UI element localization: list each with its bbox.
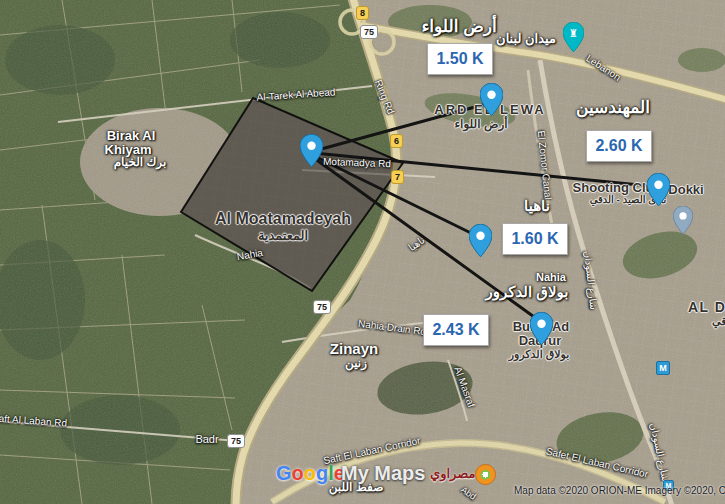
distance-label-mohandessin[interactable]: 2.60 K <box>586 130 652 162</box>
google-letter: o <box>292 462 304 485</box>
google-letter: G <box>276 462 292 485</box>
route-badge-8: 8 <box>356 6 369 20</box>
distance-label-nahia[interactable]: 1.60 K <box>502 223 568 255</box>
label-lebanon-square: ميدان لبنان <box>496 32 556 46</box>
castle-icon: ♜ <box>569 27 578 39</box>
label-al-doqi-arabic: الدقي <box>712 316 725 328</box>
label-dokki: Dokki <box>668 183 703 197</box>
label-moatamadeyah-arabic: المعتمدية <box>258 229 308 243</box>
label-al-doqi: AL DOQI <box>688 300 725 315</box>
label-mohandessin: المهندسين <box>576 99 650 117</box>
marker-pin-center[interactable] <box>300 134 323 167</box>
marker-pin-ard-el-lewa[interactable] <box>480 83 503 116</box>
landmark-pin-lebanon-square[interactable]: ♜ <box>563 22 584 52</box>
route-badge-7: 7 <box>391 170 404 184</box>
label-zinayn-arabic: زنين <box>345 357 367 370</box>
my-maps-wordmark: My Maps <box>341 462 425 485</box>
label-moatamadeyah: Al Moatamadeyah <box>215 211 351 228</box>
label-nahia-arabic: ناهيا <box>524 198 550 214</box>
marker-pin-gray[interactable] <box>673 206 693 234</box>
distance-label-bulaq[interactable]: 2.43 K <box>423 314 489 346</box>
label-bulaq-arabic-big: بولاق الدكرور <box>486 284 569 300</box>
marker-pin-dokki[interactable] <box>647 173 670 206</box>
marker-pin-bulaq[interactable] <box>530 312 553 345</box>
label-ard-el-lewa-arabic-small: أرض اللواء <box>454 118 507 131</box>
masrawy-logo-icon <box>475 464 496 485</box>
label-nahia-small: Nahia <box>536 272 566 284</box>
metro-icon: M <box>656 361 670 375</box>
label-bulaq-arabic-small: بولاق الدكرور <box>509 349 570 361</box>
google-letter: o <box>304 462 316 485</box>
route-badge-75-mid: 75 <box>313 300 331 314</box>
label-zinayn: Zinayn <box>330 341 378 357</box>
masrawy-wordmark: مصراوي <box>430 466 475 481</box>
label-birak-line1: Birak Al <box>107 129 156 143</box>
google-letter: g <box>316 462 328 485</box>
route-badge-75-bottom: 75 <box>227 434 245 448</box>
label-birak-arabic: برك الخيام <box>114 156 167 169</box>
route-badge-75-top: 75 <box>360 25 378 39</box>
route-badge-6: 6 <box>390 134 403 148</box>
distance-label-ard-el-lewa[interactable]: 1.50 K <box>427 43 493 75</box>
label-ard-el-lewa-arabic: أرض اللواء <box>421 18 496 36</box>
google-logo[interactable]: Google <box>276 462 345 485</box>
road-label-badr: Badr <box>195 434 218 446</box>
map-attribution: Map data ©2020 ORION-ME Imagery ©2020, C <box>514 485 725 496</box>
marker-pin-nahia[interactable] <box>469 224 492 257</box>
map-canvas[interactable]: أرض اللواء المهندسين ناهيا بولاق الدكرور… <box>0 0 725 504</box>
